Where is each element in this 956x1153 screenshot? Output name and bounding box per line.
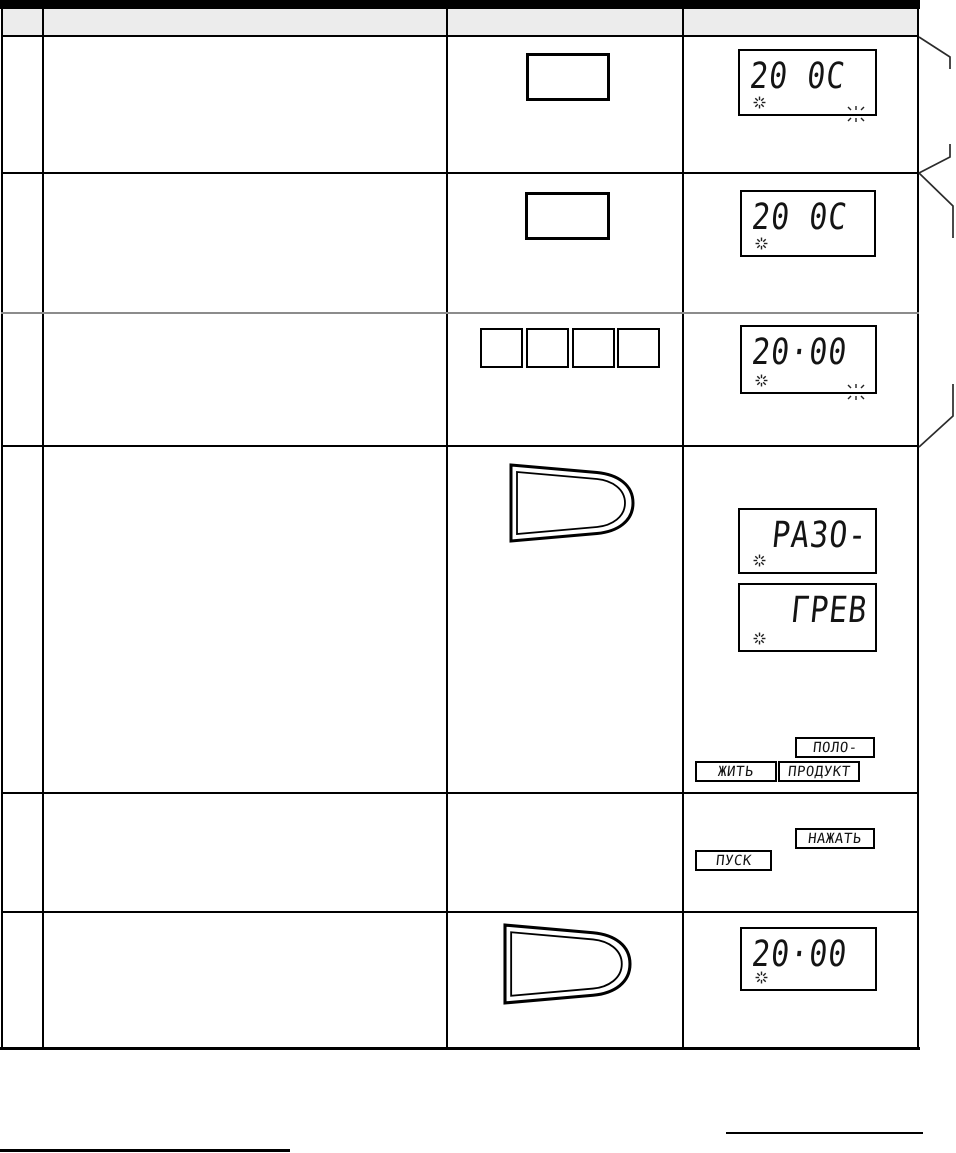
fan-indicator-icon <box>755 237 768 250</box>
table-top-border <box>0 0 920 9</box>
row-divider-5 <box>1 911 919 913</box>
lcd-display-row6: 20·00 <box>740 927 877 991</box>
lcd-value: 20·00 <box>750 335 849 371</box>
lcd-message-box: ЖИТЬ <box>695 761 777 782</box>
lcd-value: ГРЕВ <box>789 593 869 629</box>
table-bottom-border <box>0 1047 920 1050</box>
table-left-border <box>1 9 3 1049</box>
blink-marks-icon <box>845 103 867 125</box>
row-divider-4 <box>1 792 919 794</box>
fan-indicator-icon <box>755 971 768 984</box>
lcd-display-row2: 20 0C <box>740 190 876 257</box>
lcd-message: ПРОДУКТ <box>787 765 851 779</box>
footnote-rule-left <box>0 1149 290 1152</box>
blink-marks-icon <box>845 381 867 403</box>
digit-button-illustration-1 <box>480 328 523 368</box>
digit-button-illustration-4 <box>617 328 660 368</box>
column-divider-1 <box>42 9 44 1049</box>
start-button-illustration <box>498 922 638 1006</box>
fan-indicator-icon <box>753 96 766 109</box>
button-illustration-row1 <box>526 53 610 101</box>
lcd-message: ПОЛО- <box>812 741 858 755</box>
lcd-message: НАЖАТЬ <box>807 832 862 846</box>
lcd-message-box: ПОЛО- <box>795 737 875 758</box>
fan-indicator-icon <box>755 374 768 387</box>
lcd-message: ЖИТЬ <box>717 765 754 779</box>
row-divider-2 <box>1 312 919 314</box>
column-divider-3 <box>682 9 684 1049</box>
lcd-value: 20 0C <box>748 59 847 95</box>
row-divider-1 <box>1 172 919 174</box>
table-header-row <box>2 9 918 36</box>
lcd-display-row4-line2: ГРЕВ <box>738 583 877 652</box>
digit-button-illustration-3 <box>572 328 615 368</box>
lcd-message-box: НАЖАТЬ <box>795 828 875 849</box>
start-button-illustration <box>505 462 640 544</box>
lcd-message-box: ПРОДУКТ <box>778 761 860 782</box>
lcd-display-row3: 20·00 <box>740 325 877 394</box>
lcd-value: РАЗО- <box>770 518 869 554</box>
lcd-display-row1: 20 0C <box>738 49 877 116</box>
fan-indicator-icon <box>753 554 766 567</box>
footnote-rule-right <box>726 1132 923 1134</box>
digit-button-illustration-2 <box>526 328 569 368</box>
column-divider-2 <box>446 9 448 1049</box>
lcd-message: ПУСК <box>715 854 752 868</box>
lcd-message-box: ПУСК <box>695 850 772 871</box>
table-right-border <box>917 9 919 1049</box>
lcd-value: 20 0C <box>750 200 849 236</box>
row-divider-3 <box>1 445 919 447</box>
fan-indicator-icon <box>753 632 766 645</box>
button-illustration-row2 <box>525 192 610 240</box>
header-bottom-border <box>1 35 919 37</box>
manual-page: 20 0C 20 0C <box>0 0 956 1153</box>
lcd-value: 20·00 <box>750 937 849 973</box>
lcd-display-row4-line1: РАЗО- <box>738 508 877 574</box>
